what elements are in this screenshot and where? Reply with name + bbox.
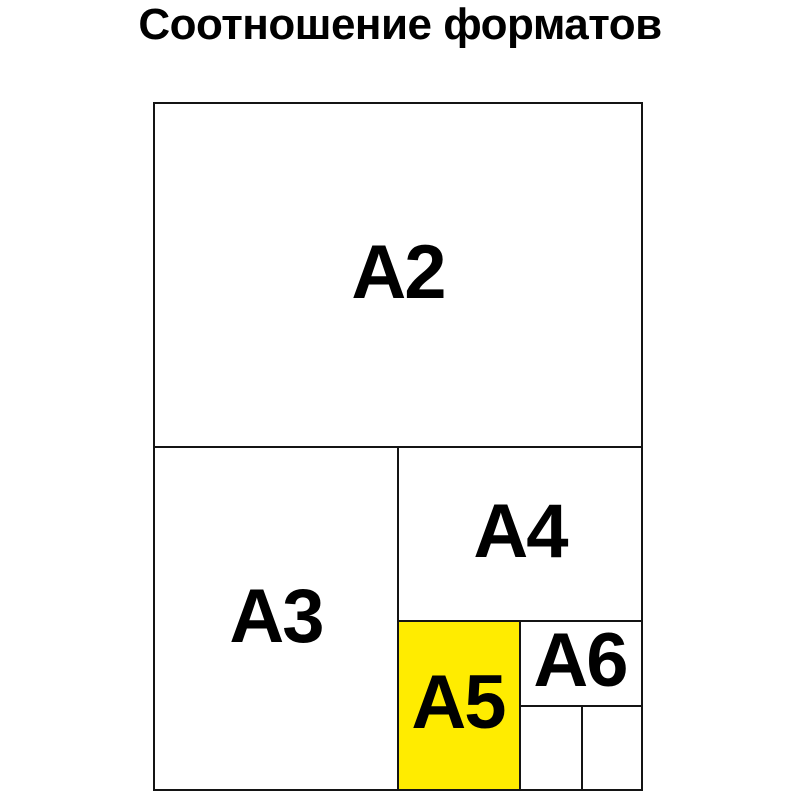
format-label-a2: A2	[351, 235, 444, 311]
format-label-a5: A5	[411, 665, 504, 741]
format-cell-a4: A4	[399, 448, 641, 620]
format-ratio-figure: Соотношение форматов A2 A3 A4 A5 A6	[0, 0, 800, 800]
format-label-a6: A6	[533, 623, 626, 699]
page-title: Соотношение форматов	[0, 0, 800, 53]
format-cell-a5-highlighted: A5	[397, 620, 519, 789]
format-cell-a3: A3	[155, 448, 397, 789]
format-cell-a2: A2	[155, 104, 641, 446]
format-label-a3: A3	[229, 579, 322, 655]
format-label-a4: A4	[473, 494, 566, 570]
divider-a6-bottom	[519, 705, 641, 707]
divider-a3-right	[397, 446, 399, 789]
format-cell-a6: A6	[519, 620, 641, 705]
divider-a7-split	[581, 705, 583, 789]
format-cell-unlabeled-right	[581, 705, 641, 789]
format-cell-unlabeled-left	[519, 705, 581, 789]
paper-format-diagram: A2 A3 A4 A5 A6	[153, 102, 643, 791]
